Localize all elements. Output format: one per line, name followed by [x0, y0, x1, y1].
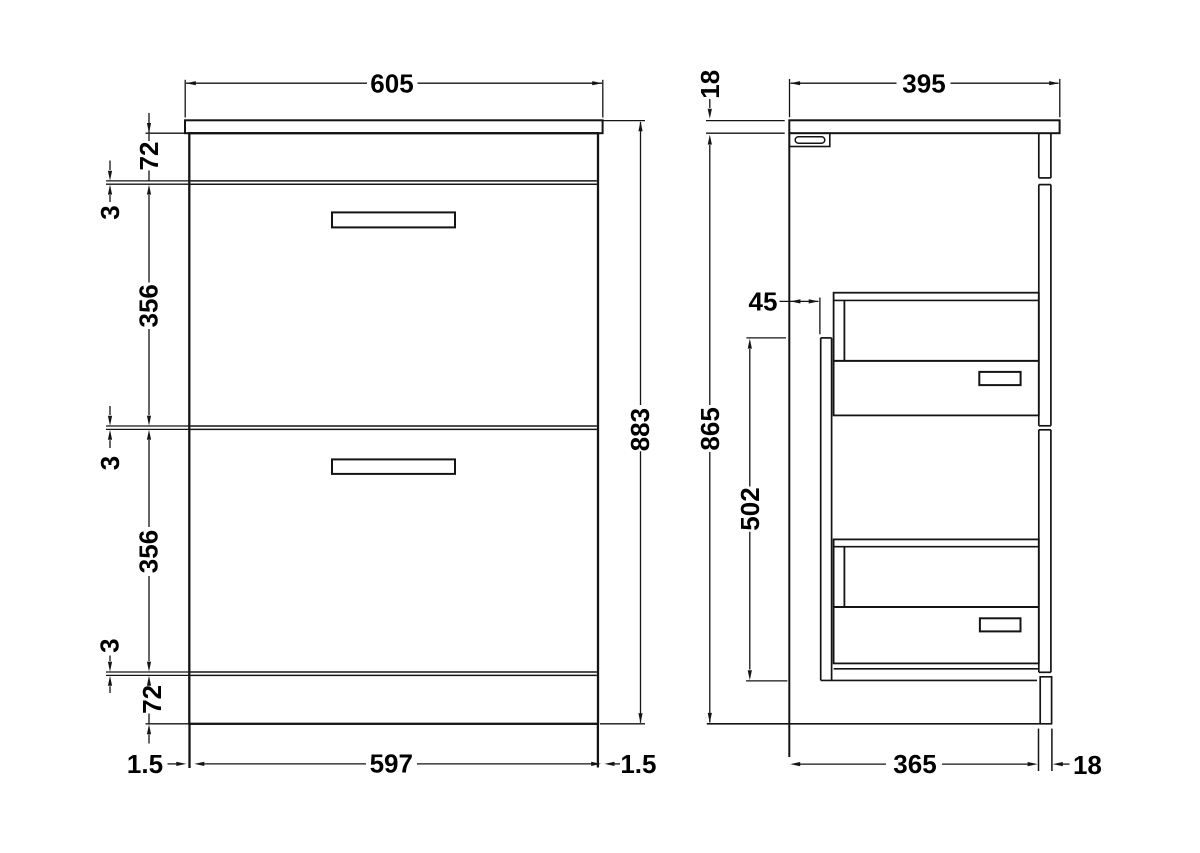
svg-text:356: 356 [133, 530, 163, 573]
svg-text:45: 45 [749, 287, 778, 317]
svg-text:18: 18 [695, 70, 725, 99]
svg-text:597: 597 [370, 749, 413, 779]
svg-text:502: 502 [735, 487, 765, 530]
svg-text:356: 356 [133, 284, 163, 327]
svg-text:3: 3 [95, 638, 125, 652]
svg-text:1.5: 1.5 [620, 749, 656, 779]
svg-text:605: 605 [370, 68, 413, 98]
svg-text:865: 865 [695, 407, 725, 450]
svg-text:3: 3 [95, 205, 125, 219]
svg-text:365: 365 [893, 749, 936, 779]
svg-text:72: 72 [134, 142, 164, 171]
svg-text:1.5: 1.5 [127, 749, 163, 779]
svg-text:18: 18 [1073, 750, 1102, 780]
svg-text:883: 883 [625, 408, 655, 451]
svg-text:395: 395 [902, 69, 945, 99]
svg-text:3: 3 [95, 456, 125, 470]
svg-text:72: 72 [137, 685, 167, 714]
